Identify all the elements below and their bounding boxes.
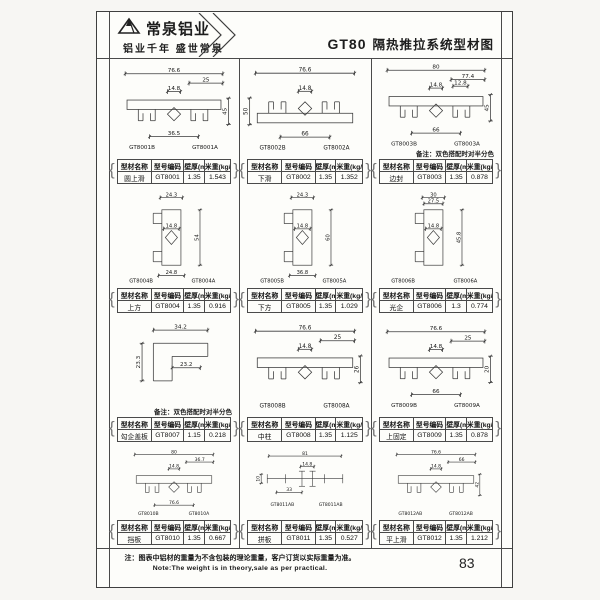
spec-header-thickness: 壁厚(mm): [184, 521, 205, 533]
spec-table: 型材名称 型号编码 壁厚(mm) 米重(kg/m) 拼板 GT8011 1.35…: [247, 520, 363, 545]
spec-value-weight: 0.667: [204, 533, 230, 545]
spec-table-wrap: 型材名称 型号编码 壁厚(mm) 米重(kg/m) 平上滑 GT8012 1.3…: [379, 520, 493, 545]
svg-text:23.3: 23.3: [136, 355, 142, 368]
spec-header-name: 型材名称: [248, 418, 282, 430]
spec-header-weight: 米重(kg/m): [204, 521, 230, 533]
svg-text:GT8004B: GT8004B: [129, 279, 153, 285]
spec-value-code: GT8006: [413, 301, 446, 313]
svg-text:45.8: 45.8: [456, 232, 462, 244]
svg-text:14.8: 14.8: [299, 344, 312, 350]
spec-value-weight: 0.878: [466, 172, 492, 184]
spec-table: 型材名称 型号编码 壁厚(mm) 米重(kg/m) 下滑 GT8002 1.35…: [247, 159, 363, 184]
spec-value-name: 上固定: [380, 430, 414, 442]
svg-text:14.8: 14.8: [166, 223, 178, 229]
spec-header-name: 型材名称: [248, 160, 282, 172]
svg-text:45: 45: [223, 107, 229, 115]
spec-table-wrap: 型材名称 型号编码 壁厚(mm) 米重(kg/m) 光企 GT8006 1.3 …: [379, 288, 493, 313]
svg-text:77.4: 77.4: [462, 74, 475, 80]
spec-value-thickness: 1.35: [315, 301, 336, 313]
spec-table-wrap: 型材名称 型号编码 壁厚(mm) 米重(kg/m) 上方 GT8004 1.35…: [117, 288, 231, 313]
spec-value-weight: 0.916: [204, 301, 230, 313]
spec-table-wrap: 型材名称 型号编码 壁厚(mm) 米重(kg/m) 中柱 GT8008 1.35…: [247, 417, 363, 442]
spec-header-name: 型材名称: [380, 289, 414, 301]
spec-value-thickness: 1.35: [315, 172, 336, 184]
spec-table-wrap: 型材名称 型号编码 壁厚(mm) 米重(kg/m) 边封 GT8003 1.35…: [379, 159, 493, 184]
header: 常泉铝业 铝业千年 盛世常泉 GT80 隔热推拉系统型材图: [97, 12, 512, 58]
spec-header-code: 型号编码: [413, 418, 446, 430]
spec-header-name: 型材名称: [380, 521, 414, 533]
svg-text:14.8: 14.8: [431, 464, 441, 470]
spec-header-thickness: 壁厚(mm): [184, 289, 205, 301]
spec-header-name: 型材名称: [118, 160, 152, 172]
profile-drawing: 8077.412.814.86645GT8003BGT8003A: [374, 60, 498, 150]
footnote-en: Note:The weight is in theory,sale as per…: [109, 564, 371, 573]
svg-text:23.2: 23.2: [180, 362, 193, 368]
profile-cell: 24.314.824.854GT8004BGT8004A 型材名称 型号编码 壁…: [109, 187, 239, 316]
spec-value-weight: 1.212: [466, 533, 492, 545]
spec-value-name: 圆上滑: [118, 172, 152, 184]
spec-table-wrap: 型材名称 型号编码 壁厚(mm) 米重(kg/m) 挡板 GT8010 1.35…: [117, 520, 231, 545]
profile-cell: 8077.412.814.86645GT8003BGT8003A 备注：双色搭配…: [371, 58, 501, 187]
spec-header-weight: 米重(kg/m): [466, 521, 492, 533]
profile-cell: 76.62514.86620GT8009BGT8009A 型材名称 型号编码 壁…: [371, 316, 501, 445]
svg-text:GT8010B: GT8010B: [138, 511, 159, 517]
svg-text:20: 20: [485, 365, 491, 373]
spec-header-thickness: 壁厚(mm): [315, 289, 336, 301]
svg-text:36.5: 36.5: [168, 131, 181, 137]
spec-table: 型材名称 型号编码 壁厚(mm) 米重(kg/m) 平上滑 GT8012 1.3…: [379, 520, 493, 545]
spec-table: 型材名称 型号编码 壁厚(mm) 米重(kg/m) 上固定 GT8009 1.3…: [379, 417, 493, 442]
spec-header-name: 型材名称: [118, 289, 152, 301]
svg-text:GT8009B: GT8009B: [391, 403, 417, 409]
spec-header-thickness: 壁厚(mm): [446, 160, 467, 172]
spec-table: 型材名称 型号编码 壁厚(mm) 米重(kg/m) 边封 GT8003 1.35…: [379, 159, 493, 184]
spec-header-name: 型材名称: [380, 160, 414, 172]
profile-cell: 76.62514.836.545GT8001BGT8001A 型材名称 型号编码…: [109, 58, 239, 187]
spec-header-code: 型号编码: [282, 418, 315, 430]
svg-text:24.8: 24.8: [166, 270, 178, 276]
catalog-sheet: 常泉铝业 铝业千年 盛世常泉 GT80 隔热推拉系统型材图 76.62514.8…: [96, 11, 513, 588]
page-title-text: 隔热推拉系统型材图: [372, 34, 494, 53]
spec-value-weight: 0.527: [336, 533, 363, 545]
profile-drawing: 76.62514.826GT8008BGT8008A: [242, 318, 368, 415]
spec-header-name: 型材名称: [380, 418, 414, 430]
spec-value-weight: 0.878: [466, 430, 492, 442]
page-title: GT80 隔热推拉系统型材图: [327, 34, 494, 53]
spec-value-thickness: 1.35: [184, 301, 205, 313]
spec-value-weight: 0.218: [204, 430, 230, 442]
spec-value-thickness: 1.35: [446, 533, 467, 545]
spec-value-name: 上方: [118, 301, 152, 313]
spec-value-thickness: 1.35: [446, 172, 467, 184]
spec-header-code: 型号编码: [413, 160, 446, 172]
svg-text:GT8011AB: GT8011AB: [319, 502, 343, 508]
svg-text:GT8003B: GT8003B: [391, 141, 417, 147]
spec-value-weight: 1.125: [336, 430, 363, 442]
spec-header-thickness: 壁厚(mm): [315, 418, 336, 430]
spec-header-code: 型号编码: [151, 160, 184, 172]
profile-cell: 76.614.86650GT8002BGT8002A 型材名称 型号编码 壁厚(…: [239, 58, 371, 187]
svg-text:24.3: 24.3: [166, 192, 178, 198]
svg-text:GT8004A: GT8004A: [192, 279, 216, 285]
profile-cell: 76.62514.826GT8008BGT8008A 型材名称 型号编码 壁厚(…: [239, 316, 371, 445]
page-number: 83: [459, 555, 475, 571]
svg-text:GT8005B: GT8005B: [260, 279, 284, 285]
profile-cell: 24.314.836.860GT8005BGT8005A 型材名称 型号编码 壁…: [239, 187, 371, 316]
spec-value-thickness: 1.35: [446, 430, 467, 442]
svg-text:60: 60: [325, 234, 331, 241]
svg-text:76.6: 76.6: [430, 326, 443, 332]
spec-value-code: GT8011: [282, 533, 315, 545]
spec-header-weight: 米重(kg/m): [336, 521, 363, 533]
svg-text:27.5: 27.5: [428, 198, 440, 204]
svg-text:14.8: 14.8: [302, 461, 312, 467]
grid-bottom-line: [97, 548, 512, 549]
profile-drawing: 8114.83310GT8011ABGT8011AB: [242, 447, 368, 518]
spec-value-thickness: 1.35: [315, 533, 336, 545]
svg-text:30: 30: [430, 192, 437, 198]
spec-value-code: GT8002: [282, 172, 315, 184]
profile-remark: 备注：双色搭配时对半分色: [374, 150, 498, 159]
spec-header-code: 型号编码: [151, 418, 184, 430]
spec-table-wrap: 型材名称 型号编码 壁厚(mm) 米重(kg/m) 拼板 GT8011 1.35…: [247, 520, 363, 545]
spec-header-thickness: 壁厚(mm): [315, 521, 336, 533]
spec-header-weight: 米重(kg/m): [204, 160, 230, 172]
profile-drawing: 76.614.86650GT8002BGT8002A: [242, 60, 368, 157]
svg-text:80: 80: [171, 449, 177, 455]
svg-text:80: 80: [432, 65, 440, 71]
profile-cell: 8114.83310GT8011ABGT8011AB 型材名称 型号编码 壁厚(…: [239, 445, 371, 548]
svg-text:GT8002B: GT8002B: [259, 146, 285, 152]
spec-table: 型材名称 型号编码 壁厚(mm) 米重(kg/m) 中柱 GT8008 1.35…: [247, 417, 363, 442]
svg-text:10: 10: [256, 476, 262, 482]
page-title-model: GT80: [327, 36, 366, 52]
svg-text:66: 66: [432, 128, 440, 134]
spec-header-name: 型材名称: [118, 521, 152, 533]
svg-text:GT8012AB: GT8012AB: [449, 511, 473, 517]
profile-cell: 34.223.223.3 备注：双色搭配时对半分色 型材名称 型号编码 壁厚(m…: [109, 316, 239, 445]
svg-text:50: 50: [244, 107, 250, 115]
svg-text:GT8012AB: GT8012AB: [398, 511, 422, 517]
svg-text:76.6: 76.6: [299, 326, 312, 332]
spec-value-thickness: 1.35: [184, 533, 205, 545]
spec-header-code: 型号编码: [282, 289, 315, 301]
spec-value-code: GT8005: [282, 301, 315, 313]
profile-drawing: 76.62514.836.545GT8001BGT8001A: [112, 60, 236, 157]
svg-text:45: 45: [485, 104, 491, 112]
spec-table-wrap: 型材名称 型号编码 壁厚(mm) 米重(kg/m) 下滑 GT8002 1.35…: [247, 159, 363, 184]
spec-header-code: 型号编码: [413, 521, 446, 533]
profile-cell: 76.66614.842GT8012ABGT8012AB 型材名称 型号编码 壁…: [371, 445, 501, 548]
spec-value-code: GT8001: [151, 172, 184, 184]
svg-text:GT8005A: GT8005A: [323, 279, 347, 285]
spec-value-code: GT8010: [151, 533, 184, 545]
profile-drawing: 3027.514.845.8GT8006BGT8006A: [374, 189, 498, 286]
svg-text:81: 81: [302, 451, 308, 457]
spec-header-code: 型号编码: [282, 521, 315, 533]
spec-header-weight: 米重(kg/m): [466, 289, 492, 301]
svg-text:42: 42: [474, 482, 480, 488]
svg-text:GT8001B: GT8001B: [129, 145, 155, 151]
profile-cell: 3027.514.845.8GT8006BGT8006A 型材名称 型号编码 壁…: [371, 187, 501, 316]
spec-header-code: 型号编码: [282, 160, 315, 172]
profile-drawing: 8036.714.876.6GT8010BGT8010A: [112, 447, 236, 518]
spec-header-weight: 米重(kg/m): [466, 418, 492, 430]
spec-table-wrap: 型材名称 型号编码 壁厚(mm) 米重(kg/m) 圆上滑 GT8001 1.3…: [117, 159, 231, 184]
spec-table-wrap: 型材名称 型号编码 壁厚(mm) 米重(kg/m) 下方 GT8005 1.35…: [247, 288, 363, 313]
spec-value-thickness: 1.15: [184, 430, 205, 442]
spec-header-name: 型材名称: [248, 521, 282, 533]
spec-header-code: 型号编码: [151, 521, 184, 533]
spec-value-name: 中柱: [248, 430, 282, 442]
svg-text:14.8: 14.8: [299, 86, 312, 92]
spec-header-weight: 米重(kg/m): [336, 289, 363, 301]
spec-header-code: 型号编码: [413, 289, 446, 301]
spec-value-thickness: 1.35: [315, 430, 336, 442]
profile-drawing: 76.62514.86620GT8009BGT8009A: [374, 318, 498, 415]
spec-value-weight: 1.543: [204, 172, 230, 184]
spec-header-weight: 米重(kg/m): [336, 418, 363, 430]
profile-drawing: 24.314.824.854GT8004BGT8004A: [112, 189, 236, 286]
svg-text:GT8006B: GT8006B: [391, 279, 415, 285]
footnote-cn: 注：图表中铝材的重量为不含包装的理论重量，客户订货以实际重量为准。: [109, 553, 371, 564]
spec-header-thickness: 壁厚(mm): [446, 289, 467, 301]
svg-text:66: 66: [459, 457, 465, 463]
svg-text:26: 26: [354, 365, 360, 373]
svg-text:76.6: 76.6: [168, 68, 181, 74]
profile-remark: 备注：双色搭配时对半分色: [112, 408, 236, 417]
spec-header-weight: 米重(kg/m): [336, 160, 363, 172]
spec-table: 型材名称 型号编码 壁厚(mm) 米重(kg/m) 圆上滑 GT8001 1.3…: [117, 159, 231, 184]
spec-table: 型材名称 型号编码 壁厚(mm) 米重(kg/m) 光企 GT8006 1.3 …: [379, 288, 493, 313]
spec-table-wrap: 型材名称 型号编码 壁厚(mm) 米重(kg/m) 勾企盖板 GT8007 1.…: [117, 417, 231, 442]
svg-text:GT8009A: GT8009A: [454, 403, 480, 409]
svg-text:14.8: 14.8: [168, 86, 181, 92]
spec-value-code: GT8007: [151, 430, 184, 442]
svg-text:33: 33: [286, 487, 292, 493]
spec-table: 型材名称 型号编码 壁厚(mm) 米重(kg/m) 勾企盖板 GT8007 1.…: [117, 417, 231, 442]
svg-text:36.8: 36.8: [297, 270, 309, 276]
spec-table: 型材名称 型号编码 壁厚(mm) 米重(kg/m) 上方 GT8004 1.35…: [117, 288, 231, 313]
profile-drawing: 24.314.836.860GT8005BGT8005A: [242, 189, 368, 286]
brand-logo-icon: [117, 16, 141, 40]
spec-value-code: GT8003: [413, 172, 446, 184]
svg-text:76.6: 76.6: [299, 68, 312, 74]
spec-header-code: 型号编码: [151, 289, 184, 301]
spec-value-name: 挡板: [118, 533, 152, 545]
svg-text:GT8003A: GT8003A: [454, 141, 480, 147]
svg-text:14.8: 14.8: [297, 223, 309, 229]
svg-text:34.2: 34.2: [174, 325, 187, 331]
spec-table-wrap: 型材名称 型号编码 壁厚(mm) 米重(kg/m) 上固定 GT8009 1.3…: [379, 417, 493, 442]
spec-value-name: 平上滑: [380, 533, 414, 545]
spec-value-code: GT8004: [151, 301, 184, 313]
spec-value-name: 边封: [380, 172, 414, 184]
profile-grid: 76.62514.836.545GT8001BGT8001A 型材名称 型号编码…: [109, 58, 501, 548]
svg-text:76.6: 76.6: [169, 500, 179, 506]
spec-value-code: GT8009: [413, 430, 446, 442]
profile-cell: 8036.714.876.6GT8010BGT8010A 型材名称 型号编码 壁…: [109, 445, 239, 548]
svg-text:66: 66: [432, 389, 440, 395]
spec-header-thickness: 壁厚(mm): [315, 160, 336, 172]
spec-header-thickness: 壁厚(mm): [184, 160, 205, 172]
svg-text:14.8: 14.8: [430, 83, 443, 89]
svg-text:GT8001A: GT8001A: [192, 145, 218, 151]
svg-text:14.8: 14.8: [169, 464, 179, 470]
svg-text:GT8008A: GT8008A: [323, 404, 349, 410]
spec-header-name: 型材名称: [248, 289, 282, 301]
spec-value-weight: 1.029: [336, 301, 363, 313]
spec-value-name: 下方: [248, 301, 282, 313]
footnote: 注：图表中铝材的重量为不含包装的理论重量，客户订货以实际重量为准。 Note:T…: [109, 553, 371, 573]
svg-text:54: 54: [194, 234, 200, 241]
right-margin-line: [501, 12, 502, 587]
svg-text:25: 25: [334, 335, 342, 341]
svg-text:66: 66: [301, 132, 309, 138]
spec-header-thickness: 壁厚(mm): [446, 418, 467, 430]
svg-text:GT8010A: GT8010A: [189, 511, 211, 517]
spec-value-code: GT8008: [282, 430, 315, 442]
spec-value-weight: 0.774: [466, 301, 492, 313]
spec-table: 型材名称 型号编码 壁厚(mm) 米重(kg/m) 下方 GT8005 1.35…: [247, 288, 363, 313]
spec-value-name: 下滑: [248, 172, 282, 184]
svg-text:14.8: 14.8: [428, 223, 440, 229]
svg-text:36.7: 36.7: [195, 457, 205, 463]
svg-text:25: 25: [464, 336, 472, 342]
spec-value-weight: 1.352: [336, 172, 363, 184]
spec-value-thickness: 1.3: [446, 301, 467, 313]
spec-header-weight: 米重(kg/m): [204, 418, 230, 430]
svg-text:GT8002A: GT8002A: [323, 146, 349, 152]
spec-value-name: 拼板: [248, 533, 282, 545]
spec-value-name: 勾企盖板: [118, 430, 152, 442]
spec-header-thickness: 壁厚(mm): [446, 521, 467, 533]
spec-header-thickness: 壁厚(mm): [184, 418, 205, 430]
spec-table: 型材名称 型号编码 壁厚(mm) 米重(kg/m) 挡板 GT8010 1.35…: [117, 520, 231, 545]
svg-text:24.3: 24.3: [297, 192, 309, 198]
spec-value-name: 光企: [380, 301, 414, 313]
svg-text:25: 25: [202, 78, 210, 84]
spec-header-weight: 米重(kg/m): [204, 289, 230, 301]
chevron-divider-icon: [197, 13, 249, 62]
svg-text:GT8008B: GT8008B: [259, 404, 285, 410]
spec-header-weight: 米重(kg/m): [466, 160, 492, 172]
svg-text:14.8: 14.8: [430, 344, 443, 350]
spec-value-thickness: 1.35: [184, 172, 205, 184]
svg-text:GT8011AB: GT8011AB: [270, 502, 294, 508]
profile-drawing: 34.223.223.3: [112, 318, 236, 408]
profile-drawing: 76.66614.842GT8012ABGT8012AB: [374, 447, 498, 518]
svg-text:GT8006A: GT8006A: [454, 279, 478, 285]
spec-value-code: GT8012: [413, 533, 446, 545]
spec-header-name: 型材名称: [118, 418, 152, 430]
svg-text:12.8: 12.8: [454, 81, 467, 87]
svg-text:76.6: 76.6: [431, 449, 441, 455]
